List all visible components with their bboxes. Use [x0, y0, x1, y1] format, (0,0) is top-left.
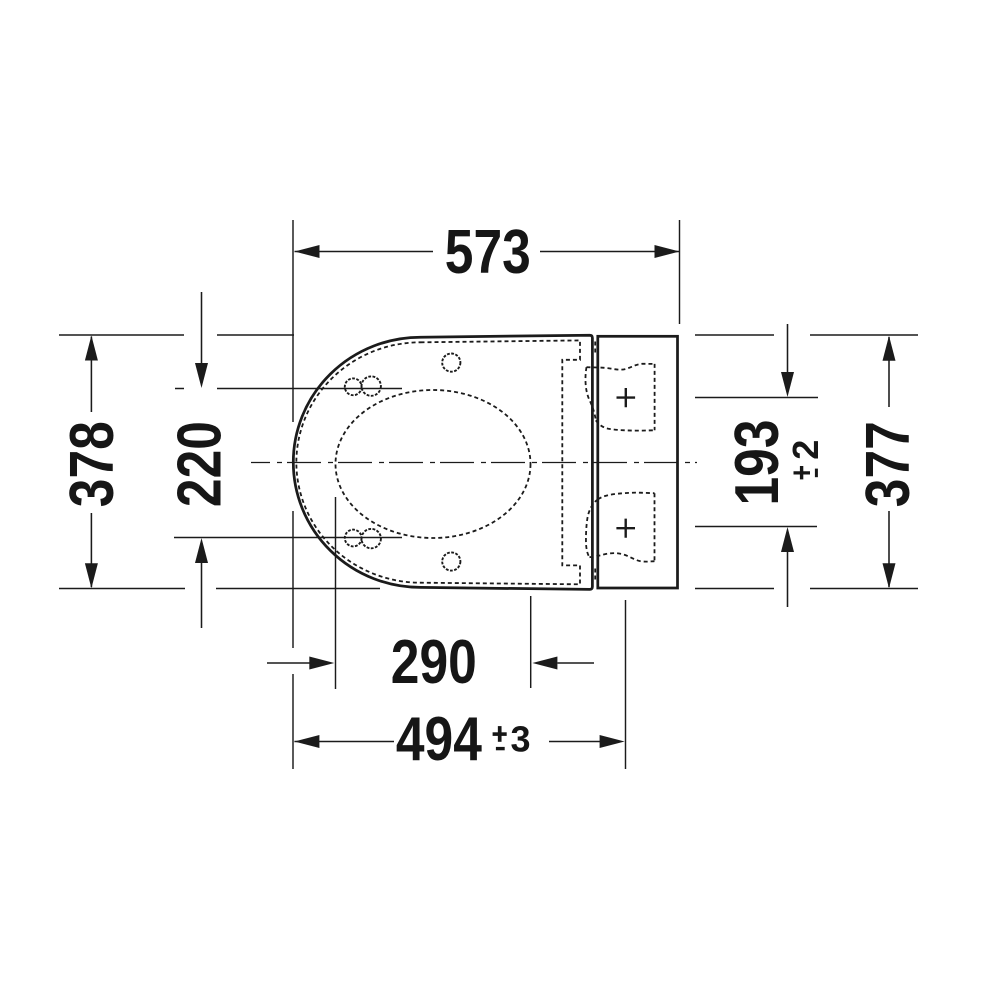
svg-text:377: 377	[854, 421, 923, 507]
svg-text:378: 378	[58, 421, 127, 507]
svg-text:3: 3	[510, 719, 530, 760]
svg-text:494: 494	[396, 705, 482, 774]
svg-text:573: 573	[445, 218, 531, 287]
svg-text:290: 290	[391, 628, 477, 697]
svg-text:2: 2	[785, 440, 826, 460]
svg-text:193: 193	[723, 420, 792, 506]
svg-text:220: 220	[166, 421, 235, 507]
